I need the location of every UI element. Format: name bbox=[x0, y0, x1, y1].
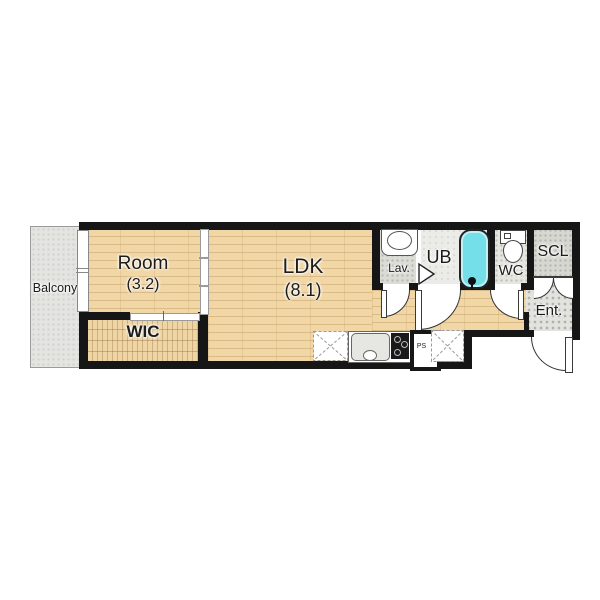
wall-hall-seg2 bbox=[409, 283, 418, 290]
wall-hall-seg4 bbox=[521, 283, 534, 290]
wic-door-tick bbox=[163, 311, 164, 321]
wall-lav-left bbox=[372, 222, 380, 290]
room-label: Room bbox=[118, 254, 169, 273]
stove-burner1 bbox=[394, 336, 401, 343]
balcony-window-tick2 bbox=[76, 272, 88, 273]
wall-wc-scl bbox=[527, 222, 534, 283]
stove-burner3 bbox=[394, 349, 401, 356]
entrance-door-arc bbox=[531, 337, 566, 371]
refrigerator-space-hatch bbox=[431, 330, 464, 362]
entrance-door-leaf bbox=[565, 337, 573, 373]
wall-top bbox=[79, 222, 580, 230]
appliance-space-hatch bbox=[313, 331, 348, 361]
wall-room-wic bbox=[86, 312, 130, 320]
scl-label: SCL bbox=[537, 244, 568, 260]
toilet-button bbox=[504, 233, 511, 239]
wall-ent-step bbox=[524, 312, 529, 330]
balcony-label: Balcony bbox=[33, 282, 77, 295]
room-size-label: (3.2) bbox=[127, 277, 160, 293]
partition-joint1 bbox=[199, 257, 209, 259]
balcony-window-tick bbox=[76, 268, 88, 269]
partition-joint2 bbox=[199, 285, 209, 287]
ldk-label: LDK bbox=[283, 256, 324, 277]
wall-entrance-bottom bbox=[464, 330, 534, 337]
ps-label: PS bbox=[417, 343, 426, 350]
lav-door-leaf bbox=[381, 290, 387, 318]
stove-burner2 bbox=[401, 341, 408, 348]
bathtub-faucet-stem bbox=[471, 283, 473, 289]
hall-door-leaf bbox=[415, 290, 422, 331]
wic-sliding-door bbox=[130, 313, 200, 321]
balcony-window bbox=[77, 230, 89, 312]
wc-door-leaf bbox=[518, 290, 524, 320]
washbasin-bowl bbox=[387, 231, 412, 250]
balcony-floor bbox=[30, 226, 82, 368]
wc-label: WC bbox=[499, 263, 524, 278]
wic-label: WIC bbox=[126, 323, 159, 340]
kitchen-sink-drain bbox=[363, 350, 377, 361]
floor-plan: Balcony Room (3.2) WIC LDK (8.1) Lav. UB… bbox=[0, 0, 600, 600]
lav-label: Lav. bbox=[388, 262, 410, 274]
ub-label: UB bbox=[426, 248, 451, 266]
ldk-size-label: (8.1) bbox=[284, 281, 321, 299]
wall-right bbox=[572, 222, 580, 340]
ent-label: Ent. bbox=[536, 303, 563, 318]
room-ldk-sliding-partition bbox=[200, 229, 209, 315]
wall-hall-seg1 bbox=[372, 283, 383, 290]
